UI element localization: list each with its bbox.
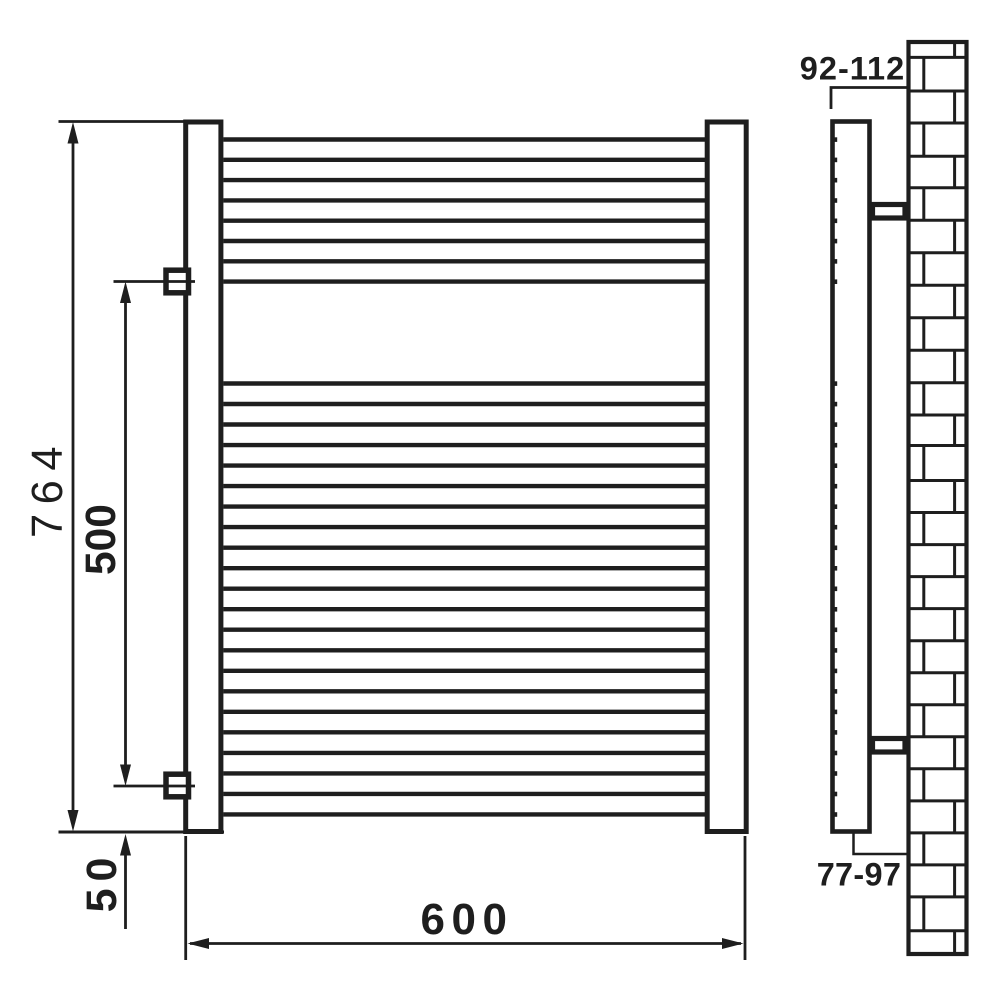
svg-text:50: 50	[78, 851, 126, 913]
svg-text:764: 764	[24, 437, 72, 538]
svg-text:77-97: 77-97	[817, 857, 902, 893]
svg-text:600: 600	[421, 895, 514, 944]
svg-text:92-112: 92-112	[800, 51, 905, 87]
svg-text:500: 500	[78, 504, 125, 575]
